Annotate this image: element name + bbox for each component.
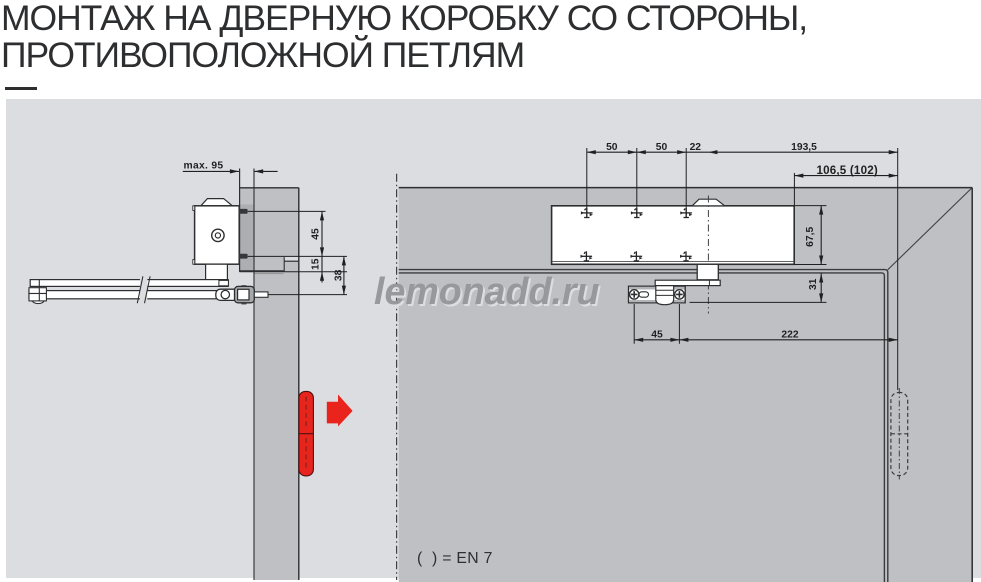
svg-text:67,5: 67,5 <box>805 227 816 247</box>
svg-text:222: 222 <box>781 329 798 340</box>
svg-text:50: 50 <box>606 142 618 153</box>
svg-text:193,5: 193,5 <box>791 142 817 153</box>
svg-text:45: 45 <box>651 329 663 340</box>
svg-text:45: 45 <box>311 228 322 240</box>
svg-text:max. 95: max. 95 <box>184 160 224 171</box>
svg-text:50: 50 <box>656 142 668 153</box>
svg-text:31: 31 <box>808 278 819 290</box>
svg-text:lemonadd.ru: lemonadd.ru <box>374 270 600 312</box>
svg-text:38: 38 <box>333 269 344 281</box>
svg-text:22: 22 <box>690 142 702 153</box>
svg-text:106,5 (102): 106,5 (102) <box>816 164 878 177</box>
svg-text:15: 15 <box>311 258 322 270</box>
